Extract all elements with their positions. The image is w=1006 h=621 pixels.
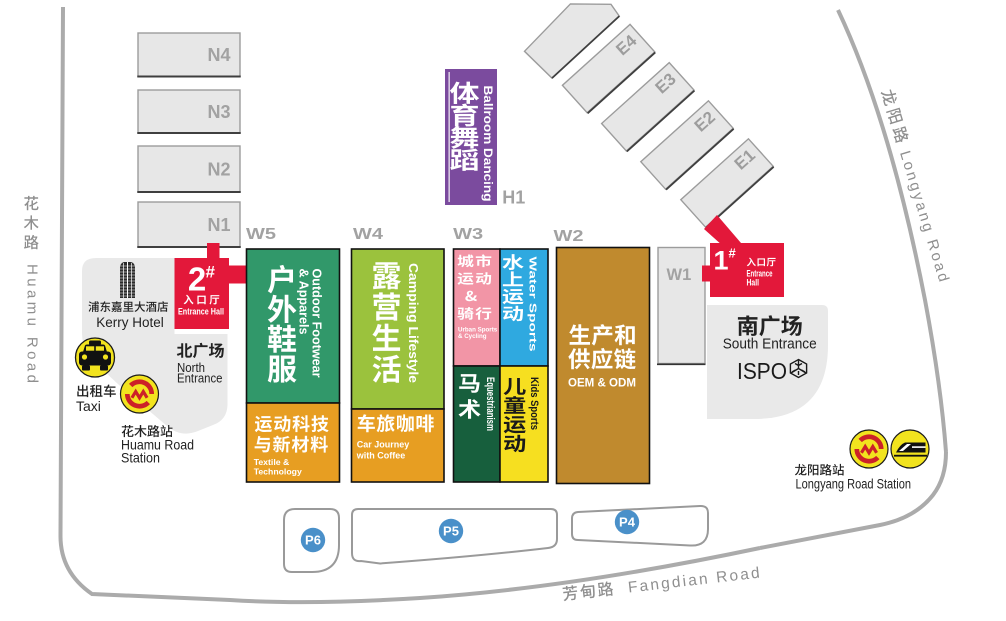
svg-text:W5: W5 (246, 226, 276, 243)
svg-text:Entrance: Entrance (177, 372, 223, 386)
svg-text:Taxi: Taxi (76, 398, 101, 414)
svg-text:H1: H1 (502, 188, 525, 208)
svg-text:Equestrianism: Equestrianism (484, 377, 496, 431)
svg-text:#: # (206, 262, 216, 281)
svg-text:#: # (729, 246, 737, 261)
svg-text:N1: N1 (207, 215, 230, 235)
svg-text:Car Journey: Car Journey (357, 440, 410, 450)
svg-text:N3: N3 (207, 102, 230, 122)
svg-text:W3: W3 (453, 226, 483, 243)
svg-text:Entrance Hall: Entrance Hall (178, 307, 224, 318)
svg-text:& Apparels: & Apparels (297, 269, 311, 335)
svg-text:1: 1 (713, 245, 728, 275)
svg-text:Longyang Road Station: Longyang Road Station (796, 477, 912, 492)
svg-text:Hall: Hall (747, 278, 760, 288)
svg-text:South Entrance: South Entrance (723, 336, 817, 353)
svg-text:Camping Lifestyle: Camping Lifestyle (406, 263, 420, 383)
svg-text:2: 2 (188, 261, 206, 298)
svg-text:N2: N2 (207, 159, 230, 179)
svg-text:with Coffee: with Coffee (356, 451, 406, 461)
svg-text:Huamu Road: Huamu Road (24, 264, 41, 386)
svg-text:Ballroom Dancing: Ballroom Dancing (481, 86, 493, 202)
svg-text:W4: W4 (353, 226, 383, 243)
svg-text:P6: P6 (305, 533, 321, 548)
svg-text:Technology: Technology (254, 467, 302, 477)
svg-text:N4: N4 (207, 45, 230, 65)
svg-text:Kids Sports: Kids Sports (528, 377, 540, 430)
svg-text:P5: P5 (443, 524, 459, 539)
svg-text:W2: W2 (554, 228, 584, 245)
svg-text:ISPO: ISPO (737, 358, 787, 384)
svg-text:Station: Station (121, 450, 160, 466)
svg-text:OEM & ODM: OEM & ODM (568, 376, 636, 390)
svg-text:Outdoor Footwear: Outdoor Footwear (310, 269, 324, 378)
svg-text:W1: W1 (667, 266, 692, 284)
svg-text:P4: P4 (619, 515, 636, 530)
svg-text:Kerry Hotel: Kerry Hotel (96, 315, 164, 330)
svg-text:Textile &: Textile & (254, 457, 290, 467)
svg-text:Water Sports: Water Sports (527, 257, 539, 352)
svg-text:& Cycling: & Cycling (458, 333, 487, 340)
